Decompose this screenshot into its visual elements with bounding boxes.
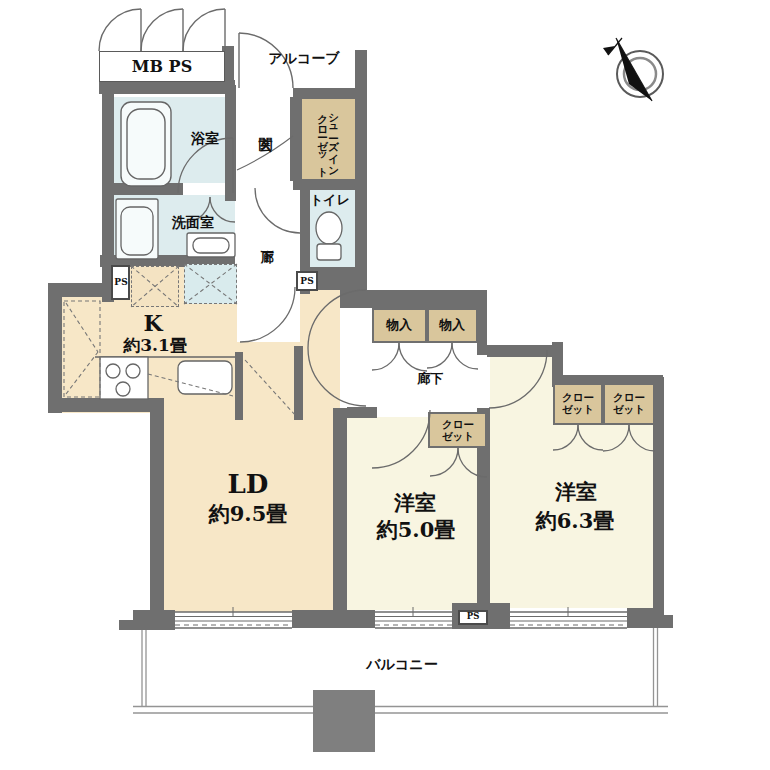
ps-label-left: PS bbox=[114, 277, 127, 287]
wall bbox=[292, 610, 375, 628]
wall bbox=[340, 290, 487, 308]
wall bbox=[663, 615, 673, 628]
wall bbox=[48, 398, 164, 412]
kitchen-name: K bbox=[143, 311, 162, 336]
wall bbox=[48, 283, 109, 297]
shoe-closet-label: シューズインクローゼット bbox=[317, 106, 339, 172]
ps-label-mid: PS bbox=[300, 276, 313, 286]
hallway2-label: 廊下 bbox=[417, 372, 443, 387]
washroom-label: 洗面室 bbox=[172, 214, 214, 230]
shoe-closet-line2: クローゼット bbox=[317, 106, 329, 172]
bedroom2-floor-left bbox=[490, 357, 553, 608]
toilet-label: トイレ bbox=[310, 193, 350, 208]
bedroom1-name: 洋室 bbox=[394, 491, 436, 515]
balcony-label: バルコニー bbox=[366, 656, 437, 672]
bedroom2-closet1-label: クローゼット bbox=[562, 391, 594, 415]
closet-line1: クロー bbox=[613, 391, 645, 403]
compass-north-icon bbox=[603, 38, 663, 101]
wall bbox=[113, 183, 183, 195]
living-dining-size: 約9.5畳 bbox=[209, 502, 288, 526]
wall bbox=[552, 342, 563, 387]
storage2-label: 物入 bbox=[439, 318, 465, 333]
shoe-closet-line1: シューズイン bbox=[328, 106, 340, 172]
kitchen-size: 約3.1畳 bbox=[123, 336, 187, 356]
storage1-label: 物入 bbox=[386, 318, 412, 333]
bathroom-label: 浴室 bbox=[191, 130, 219, 146]
hallway1-label: 廊下 bbox=[259, 239, 274, 241]
wall bbox=[487, 345, 552, 357]
wall bbox=[225, 85, 236, 201]
window-bedroom2 bbox=[510, 607, 627, 628]
wall bbox=[627, 608, 664, 628]
wall bbox=[48, 283, 62, 413]
ps-label-bottom: PS bbox=[467, 612, 480, 622]
living-dining-floor-upper bbox=[300, 290, 340, 344]
living-dining-name: LD bbox=[228, 470, 269, 500]
entrance-label: 玄関 bbox=[258, 125, 274, 127]
closet-line1: クロー bbox=[442, 418, 474, 430]
window-bedroom1 bbox=[375, 607, 452, 628]
closet-line2: ゼット bbox=[562, 403, 594, 415]
balcony-partition-pillar bbox=[313, 690, 375, 752]
bedroom2-size: 約6.3畳 bbox=[536, 509, 615, 533]
bedroom1-size: 約5.0畳 bbox=[377, 518, 456, 542]
wall bbox=[150, 398, 164, 612]
mbps-door-arcs bbox=[99, 9, 225, 51]
bedroom2-closet2-label: クローゼット bbox=[613, 391, 645, 415]
wall bbox=[119, 620, 134, 630]
floor-plan: MB PS アルコーブ 玄関 シューズインクローゼット 浴室 洗面室 トイレ 廊… bbox=[0, 0, 770, 770]
closet-line2: ゼット bbox=[442, 430, 474, 442]
wall bbox=[355, 50, 367, 88]
wall bbox=[133, 610, 175, 630]
wall bbox=[294, 346, 303, 420]
alcove-label: アルコーブ bbox=[268, 50, 339, 66]
refrigerator-space bbox=[131, 266, 179, 307]
closet-line2: ゼット bbox=[613, 403, 645, 415]
bedroom2-name: 洋室 bbox=[555, 480, 597, 504]
wall bbox=[477, 293, 487, 355]
bedroom1-closet-label: クローゼット bbox=[442, 418, 474, 442]
wall bbox=[99, 80, 235, 94]
wall bbox=[333, 408, 347, 612]
wall bbox=[347, 407, 377, 418]
closet-line1: クロー bbox=[562, 391, 594, 403]
mbps-label: MB PS bbox=[132, 58, 192, 76]
washer-space bbox=[184, 264, 237, 304]
kitchen-counter-end-panel bbox=[235, 352, 243, 420]
